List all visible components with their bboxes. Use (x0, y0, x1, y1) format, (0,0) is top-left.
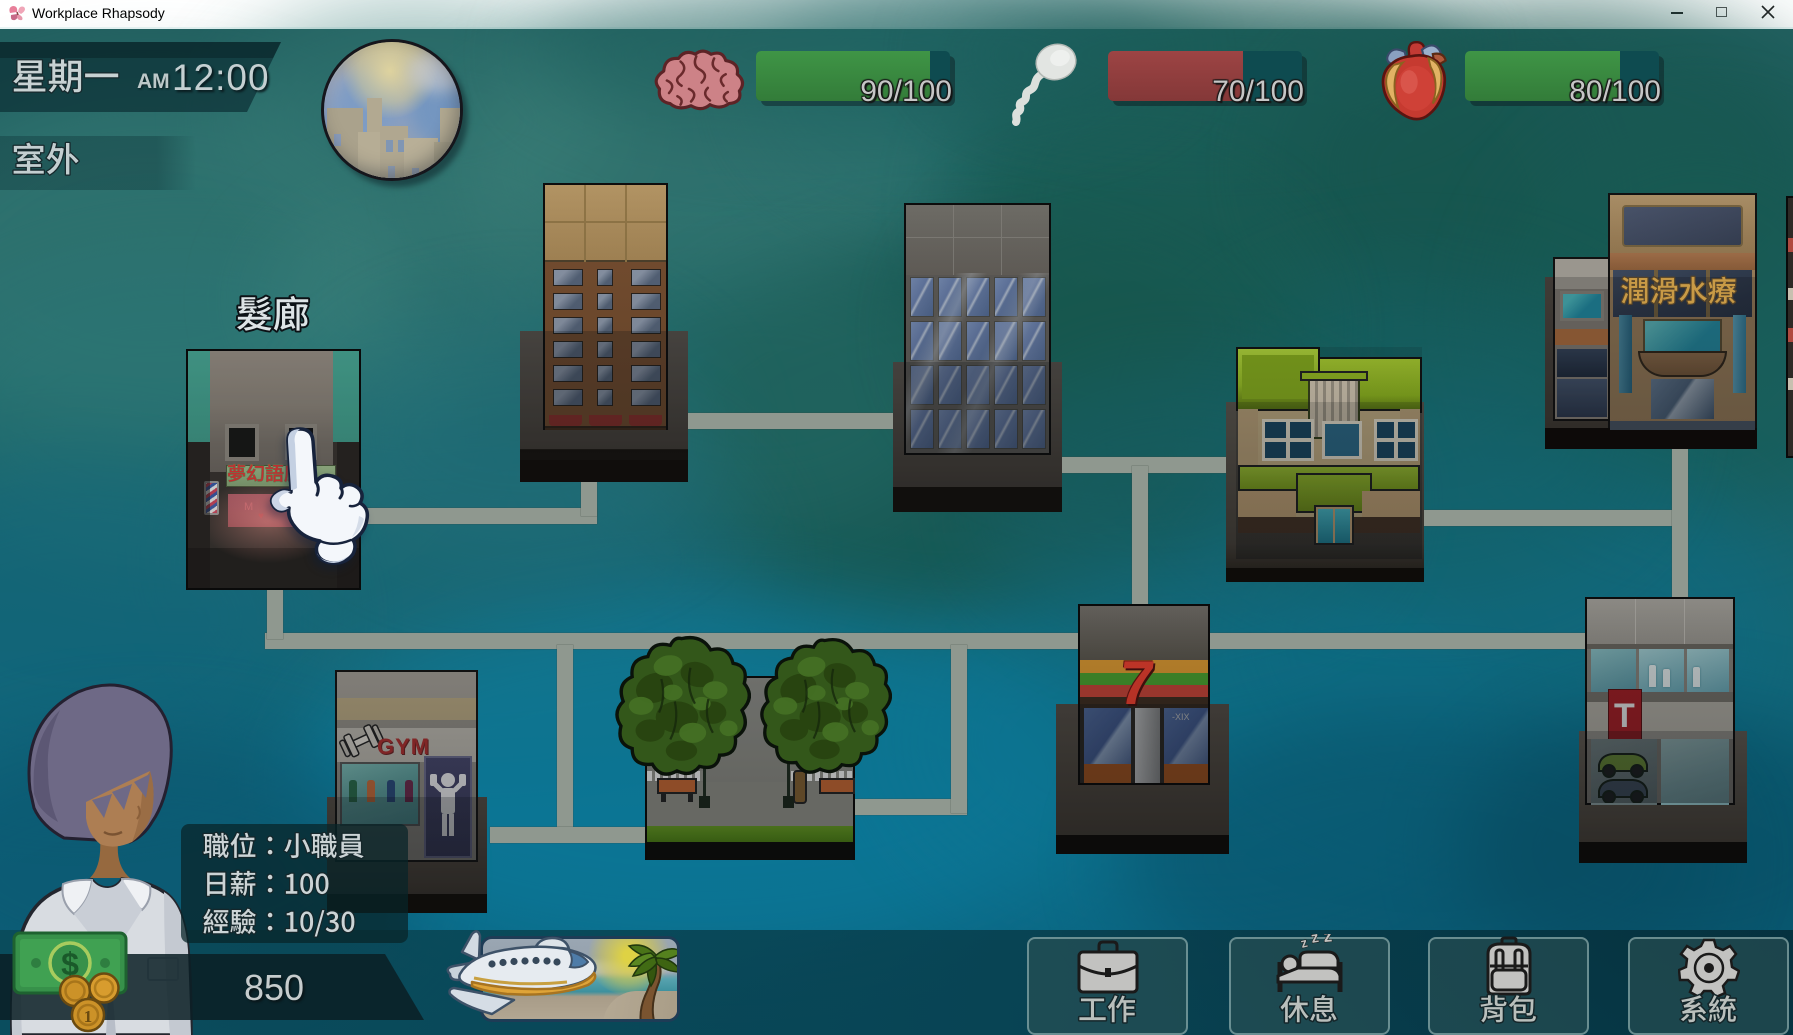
svg-text:1: 1 (84, 1007, 93, 1026)
svg-text:z: z (1310, 934, 1320, 947)
svg-text:z: z (1323, 934, 1333, 946)
svg-text:z: z (1299, 935, 1310, 951)
